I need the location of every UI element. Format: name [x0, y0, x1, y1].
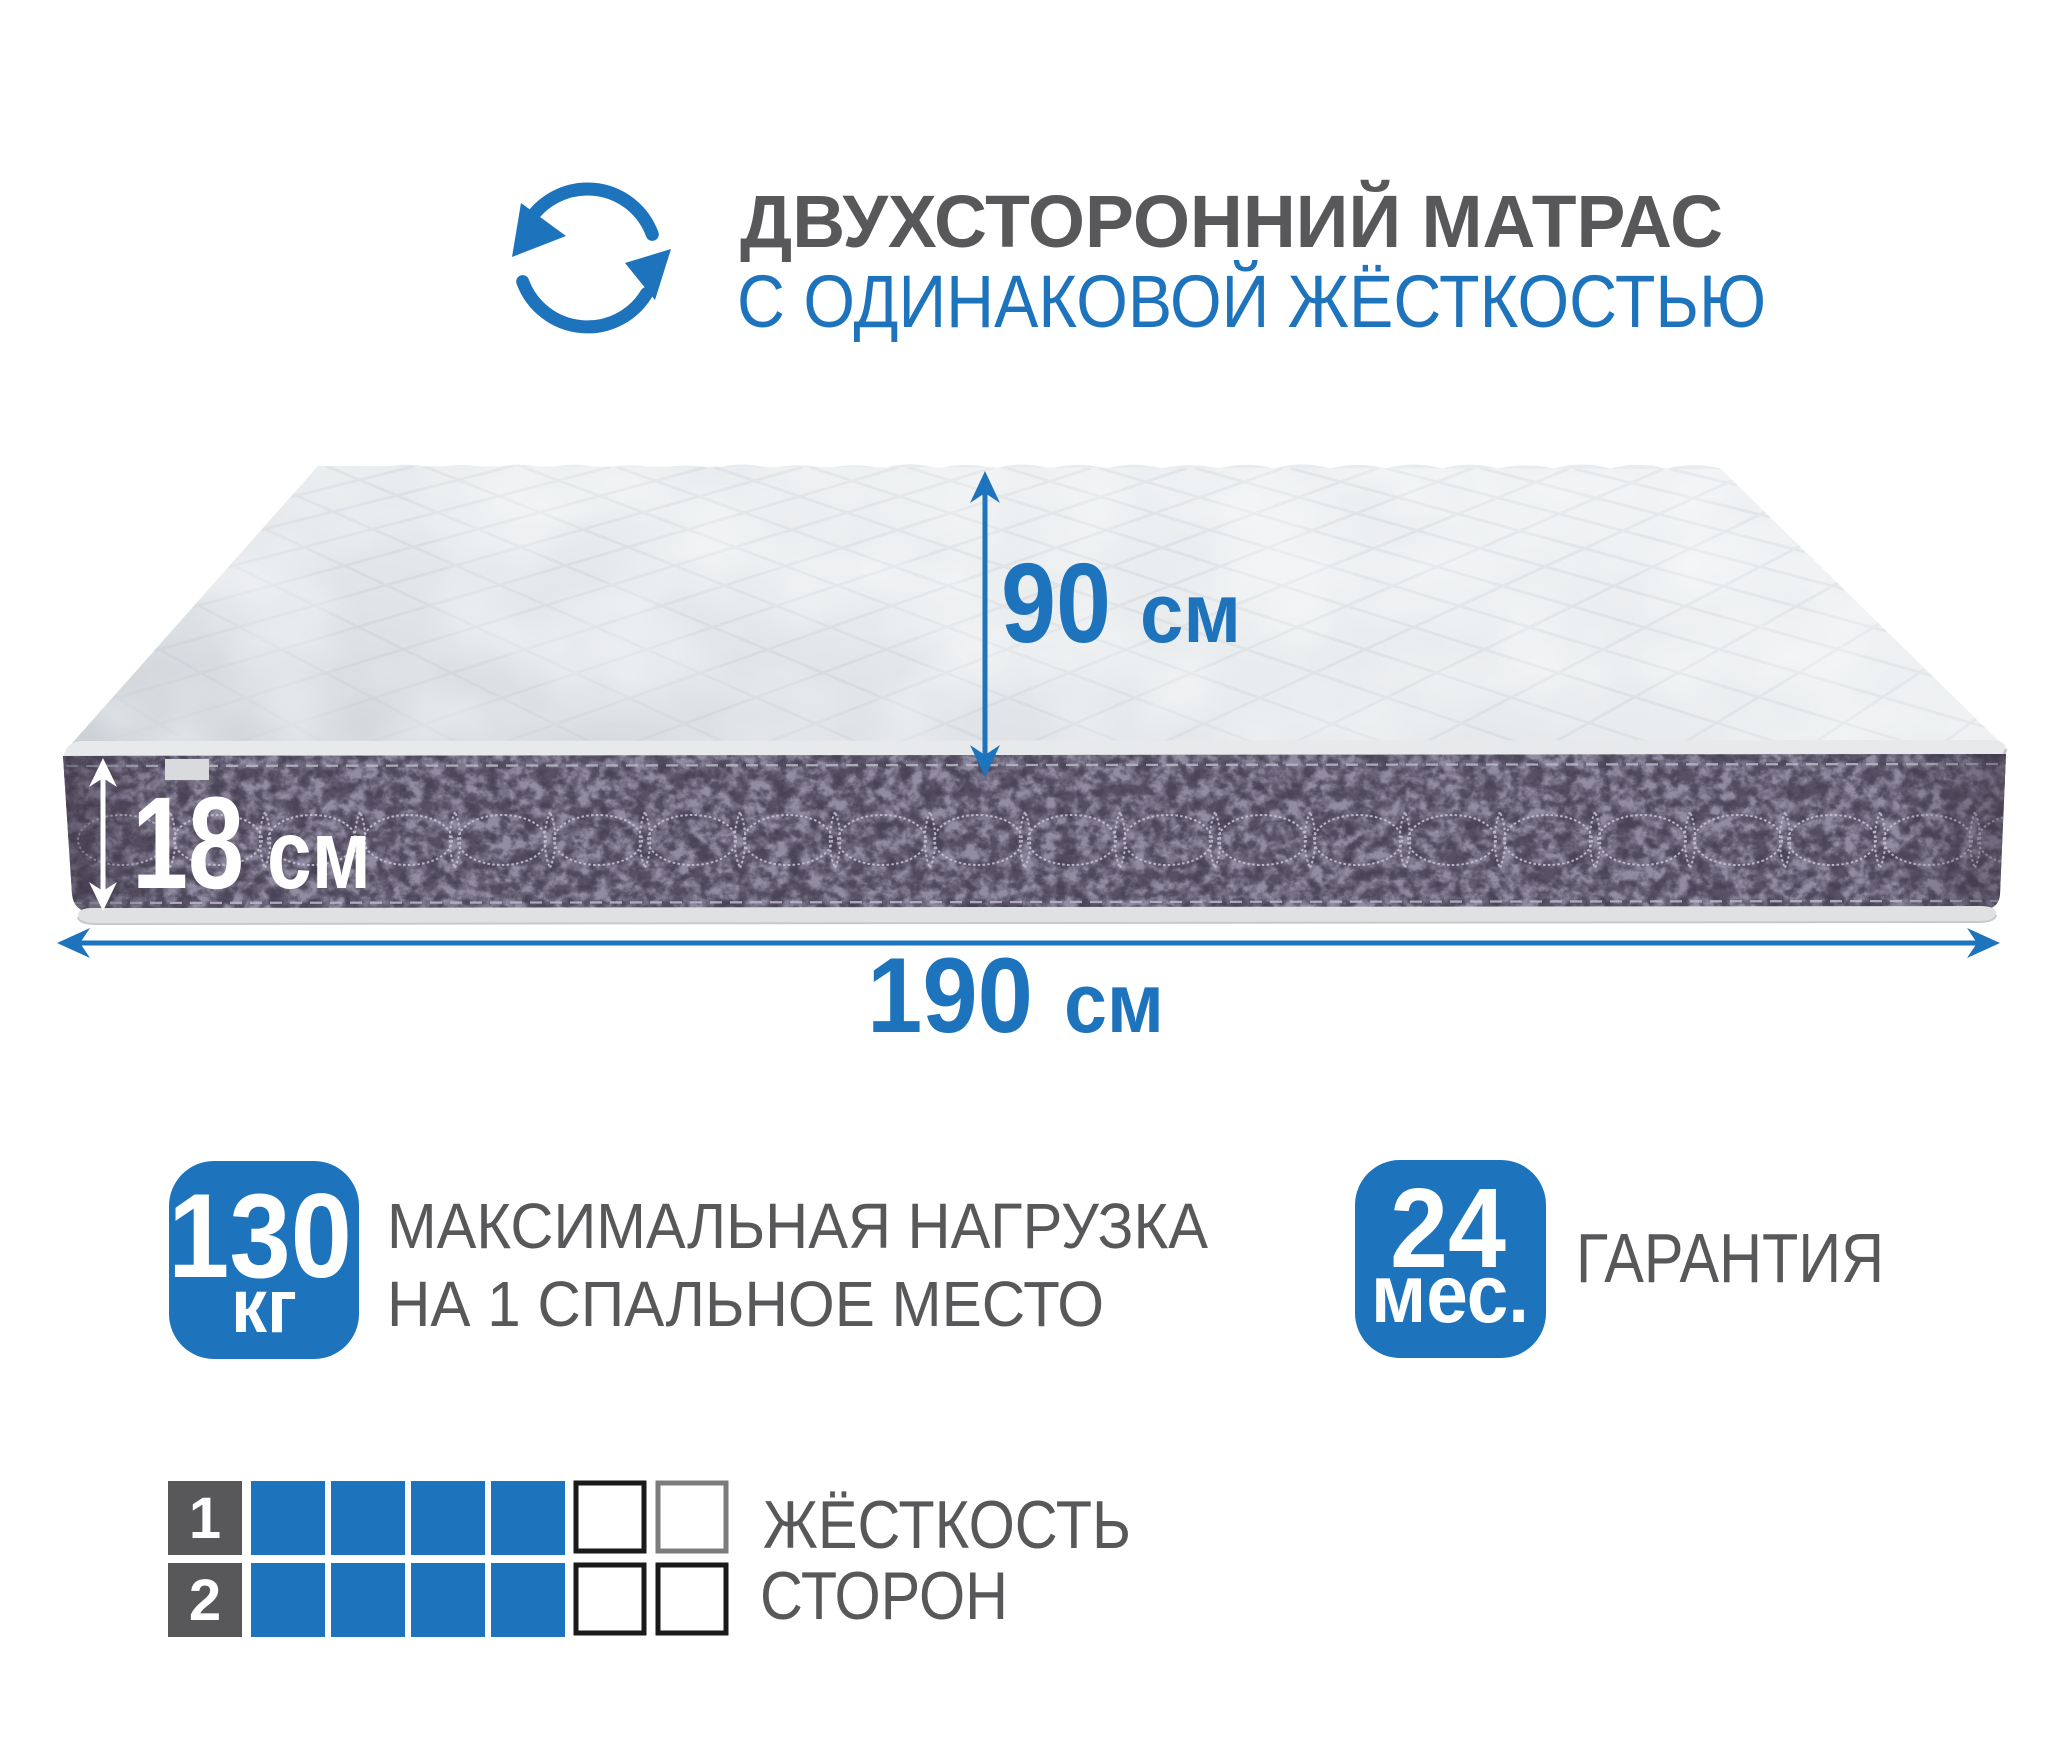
svg-text:см: см	[1140, 566, 1241, 660]
svg-text:МАКСИМАЛЬНАЯ НАГРУЗКА: МАКСИМАЛЬНАЯ НАГРУЗКА	[387, 1190, 1208, 1262]
svg-text:2: 2	[189, 1568, 221, 1633]
svg-text:18: 18	[132, 769, 244, 916]
svg-text:НА 1 СПАЛЬНОЕ МЕСТО: НА 1 СПАЛЬНОЕ МЕСТО	[387, 1268, 1104, 1340]
svg-text:ГАРАНТИЯ: ГАРАНТИЯ	[1576, 1219, 1884, 1297]
svg-text:90: 90	[1001, 540, 1111, 666]
svg-text:мес.: мес.	[1371, 1247, 1529, 1340]
svg-text:см: см	[1064, 956, 1164, 1050]
svg-text:ЖЁСТКОСТЬ: ЖЁСТКОСТЬ	[763, 1487, 1131, 1563]
svg-text:кг: кг	[231, 1264, 297, 1349]
svg-text:см: см	[267, 799, 371, 909]
svg-text:190: 190	[867, 935, 1033, 1055]
svg-text:ДВУХСТОРОННИЙ МАТРАС: ДВУХСТОРОННИЙ МАТРАС	[740, 179, 1723, 263]
svg-text:1: 1	[189, 1486, 221, 1551]
svg-text:С ОДИНАКОВОЙ ЖЁСТКОСТЬЮ: С ОДИНАКОВОЙ ЖЁСТКОСТЬЮ	[737, 260, 1766, 343]
svg-text:СТОРОН: СТОРОН	[760, 1558, 1008, 1634]
